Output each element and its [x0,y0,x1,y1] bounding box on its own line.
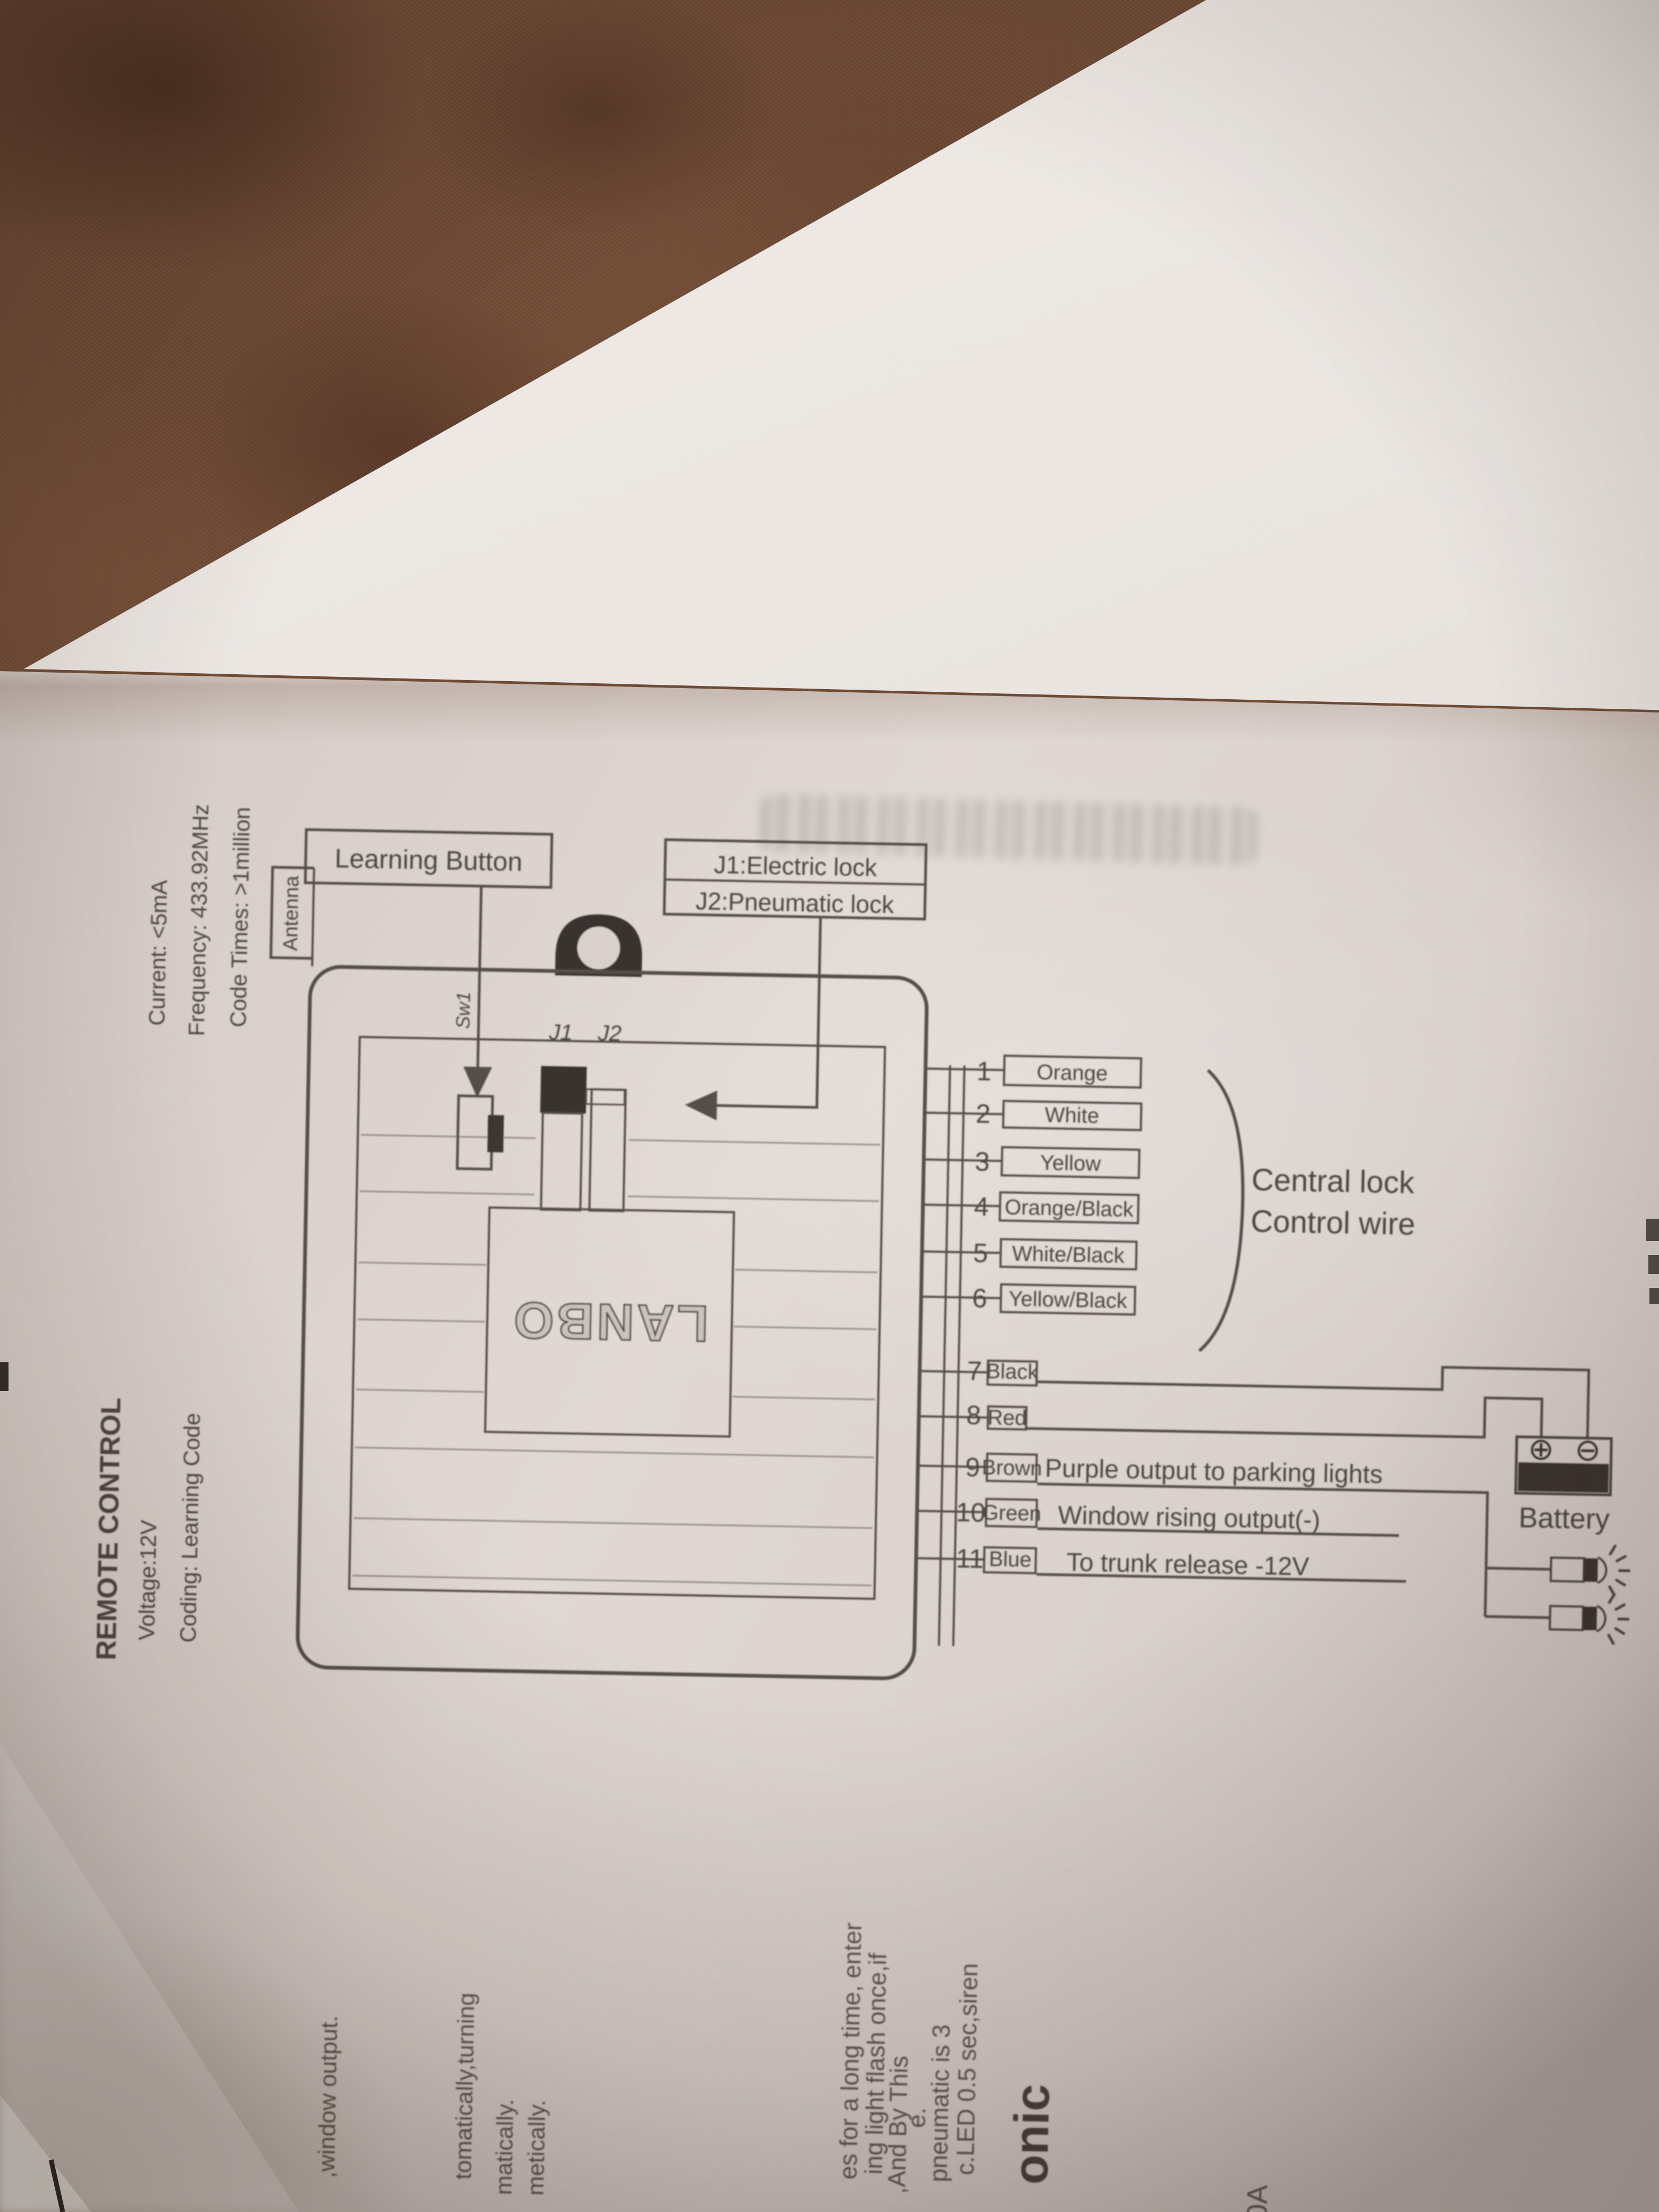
wire-number: 3 [975,1146,990,1177]
fragment: ,window output. [313,2015,342,2179]
fragment: c.LED 0.5 sec,siren [951,1963,983,2176]
right-edge-marks [1646,1219,1659,1304]
lamp-band [1583,1559,1598,1582]
left-edge-mark [0,1362,9,1391]
wire-number: 6 [972,1283,987,1313]
diagram-tilt-group: REMOTE CONTROL Voltage:12V Coding: Learn… [81,802,1645,2212]
wire-number: 9 [965,1452,981,1482]
wire-number: 5 [973,1238,988,1268]
wire-row-4: 4 Orange/Black [924,1191,1138,1225]
wire-row-9: 9 Brown Purple output to parking lights [917,1451,1553,1618]
fragment: pneumatic is 3 [924,2024,955,2183]
fragment: metically. [523,2099,550,2196]
lamp-2-feed [1485,1616,1550,1618]
lock-types-divider [665,879,925,884]
sw1-label: Sw1 [452,991,474,1029]
wire-color-label: Green [982,1501,1042,1526]
bottom-text-fragments: ,window output. tomatically,turning mati… [313,1912,1278,2212]
battery: ⊕ ⊖ Battery [1515,1431,1612,1535]
arrow-left-icon [685,1090,717,1120]
wire-color-label: Brown [982,1456,1042,1480]
parking-lamp-2 [1549,1592,1630,1645]
wire-number: 1 [976,1056,992,1086]
antenna-label: Antenna [280,875,304,951]
wire-group-brace [1200,1070,1245,1352]
wire-row-6: 6 Yellow/Black [923,1283,1135,1317]
spec-title: REMOTE CONTROL [91,1397,127,1661]
wire-8-to-battery [1026,1389,1542,1438]
battery-positive-terminal-icon: ⊕ [1528,1431,1554,1467]
wire-color-label: Orange [1036,1061,1108,1086]
edge-artifacts [0,1219,1659,2212]
parking-lamp-1 [1551,1544,1631,1596]
fragment: matically. [491,2099,518,2195]
wire-number: 11 [956,1544,984,1574]
j1-label: J1 [548,1019,573,1045]
j1-connector-head [540,1066,587,1114]
wire-number: 10 [956,1497,986,1528]
fragment: tomatically,turning [450,1992,480,2180]
lamp-bulb-icon [1597,1606,1606,1631]
wire-number: 2 [976,1099,991,1129]
wire-row-3: 3 Yellow [925,1146,1139,1180]
sheet-edge-line [51,2160,63,2212]
learning-button-label: Learning Button [334,843,523,877]
lamp-1-feed [1486,1568,1551,1569]
wire-row-11: 11 Blue To trunk release -12V [917,1543,1406,1583]
wire-rows: 1 Orange 2 White 3 Yellow [917,1054,1595,1619]
central-lock-caption-1: Central lock [1251,1162,1415,1200]
wire-row-8: 8 Red [920,1387,1542,1441]
j1-lock-label: J1:Electric lock [714,851,878,882]
brand-logo: LANBO [510,1292,709,1352]
spec-coding: Coding: Learning Code [175,1413,205,1643]
sw1-switch [457,1096,493,1169]
wire-number: 7 [967,1356,982,1386]
learning-button-pointer [477,887,481,1082]
fragment: 0A [1241,2184,1273,2212]
battery-negative-terminal-icon: ⊖ [1574,1432,1601,1468]
photo-scene: REMOTE CONTROL Voltage:12V Coding: Learn… [0,0,1659,2212]
wire-color-label: Red [987,1406,1027,1430]
lamp-rays-icon [1608,1593,1630,1645]
wire-color-label: Yellow/Black [1008,1287,1128,1313]
spec-frequency: Frequency: 433.92MHz [184,804,213,1036]
j1-connector-body [541,1113,582,1210]
wire-number: 8 [966,1400,982,1430]
wire-row-5: 5 White/Black [923,1237,1136,1271]
arrow-down-icon [463,1067,492,1098]
sw1-knob [487,1115,504,1153]
central-lock-caption-2: Control wire [1251,1204,1416,1242]
spec-current: Current: <5mA [144,879,172,1026]
wire-row-1: 1 Orange [927,1054,1141,1090]
wire-color-label: Blue [988,1547,1032,1572]
lamp-bulb-icon [1597,1557,1606,1583]
wire-color-label: Yellow [1040,1151,1101,1176]
j2-lock-label: J2:Pneumatic lock [695,887,894,918]
lamp-rays-icon [1609,1545,1631,1596]
case-ridges [353,1135,880,1586]
wire-color-label: White/Black [1012,1242,1125,1268]
fragment: onic [1003,2083,1060,2185]
battery-label: Battery [1518,1502,1610,1535]
spec-code-times: Code Times: >1million [225,807,255,1027]
j2-label: J2 [597,1020,622,1046]
lamp-band [1583,1606,1597,1630]
j2-connector-body [589,1090,625,1211]
wire-color-label: Black [986,1360,1039,1384]
lamp-body [1550,1606,1583,1630]
lamp-body [1551,1557,1584,1581]
wire-row-10: 10 Green Window rising output(-) [918,1496,1400,1536]
wire-number: 4 [974,1192,989,1222]
spec-voltage: Voltage:12V [134,1520,161,1640]
wiring-diagram: REMOTE CONTROL Voltage:12V Coding: Learn… [0,0,1659,2212]
lock-pointer [702,916,820,1108]
wire-color-label: Orange/Black [1004,1195,1134,1221]
wire-color-label: White [1044,1103,1099,1128]
wire-row-2: 2 White [926,1098,1141,1132]
